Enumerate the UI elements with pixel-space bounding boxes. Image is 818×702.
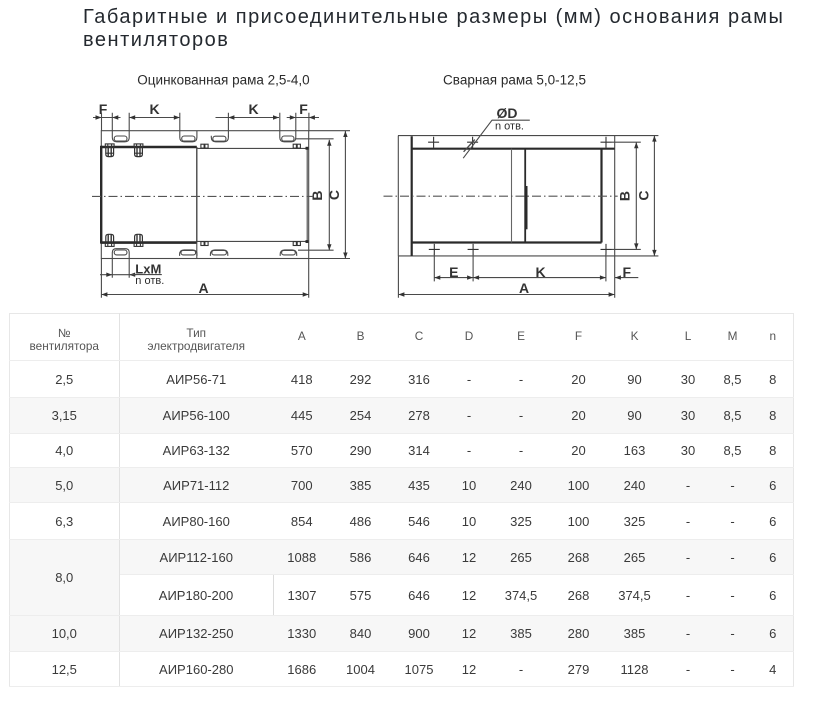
svg-text:K: K (149, 101, 159, 117)
svg-text:ØD: ØD (497, 105, 518, 121)
svg-text:B: B (616, 191, 632, 201)
svg-text:n отв.: n отв. (135, 275, 164, 287)
svg-text:F: F (299, 101, 308, 117)
svg-text:n отв.: n отв. (495, 121, 524, 133)
svg-text:A: A (519, 280, 529, 296)
svg-text:Оцинкованная рама 2,5-4,0: Оцинкованная рама 2,5-4,0 (137, 73, 309, 88)
svg-text:C: C (635, 191, 651, 201)
svg-text:F: F (99, 101, 108, 117)
svg-text:A: A (198, 280, 208, 296)
svg-text:K: K (248, 101, 258, 117)
svg-text:E: E (449, 264, 458, 280)
svg-text:C: C (326, 190, 342, 200)
svg-text:Сварная рама 5,0-12,5: Сварная рама 5,0-12,5 (443, 73, 586, 88)
svg-text:B: B (309, 190, 325, 200)
svg-text:K: K (535, 264, 545, 280)
svg-text:F: F (623, 264, 632, 280)
